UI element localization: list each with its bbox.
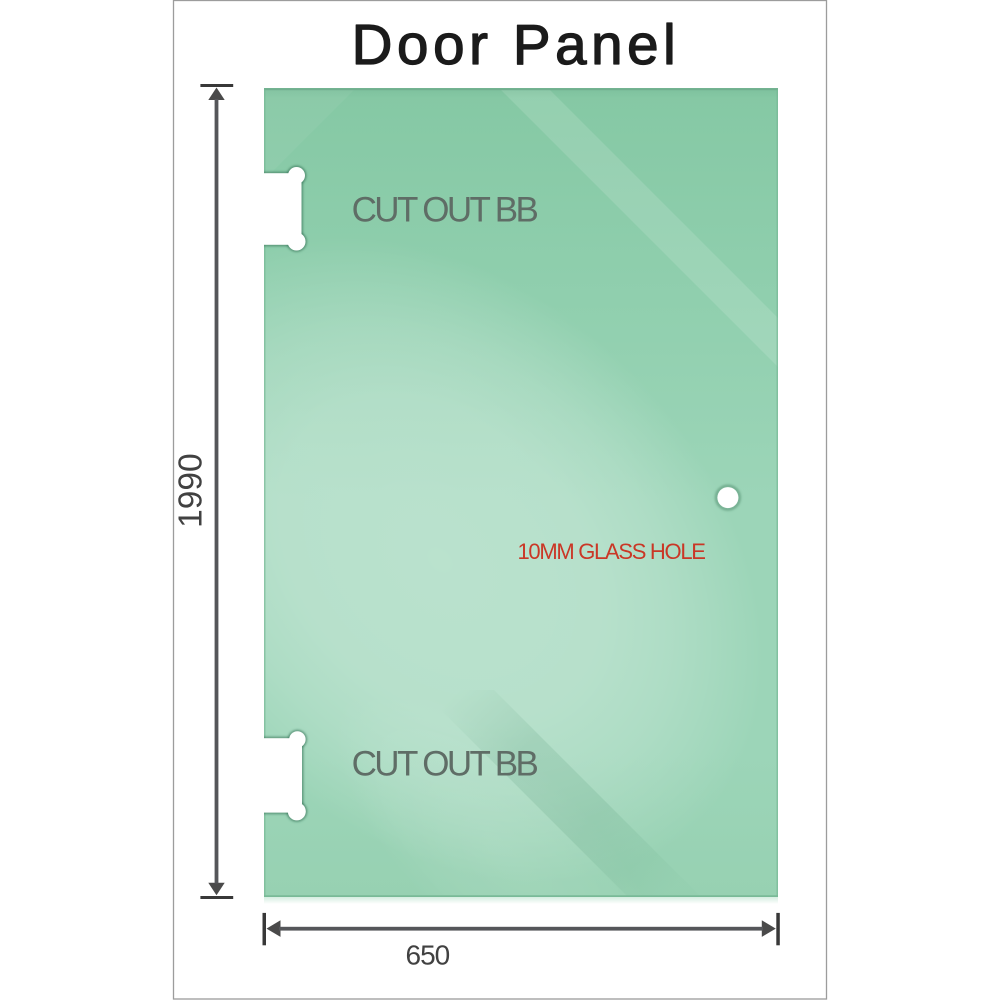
svg-text:Door Panel: Door Panel: [352, 13, 681, 76]
svg-text:1990: 1990: [173, 453, 210, 528]
svg-text:650: 650: [406, 939, 450, 970]
svg-text:CUT OUT BB: CUT OUT BB: [352, 745, 538, 784]
svg-text:10MM GLASS HOLE: 10MM GLASS HOLE: [518, 539, 706, 564]
svg-text:CUT OUT BB: CUT OUT BB: [352, 191, 538, 230]
